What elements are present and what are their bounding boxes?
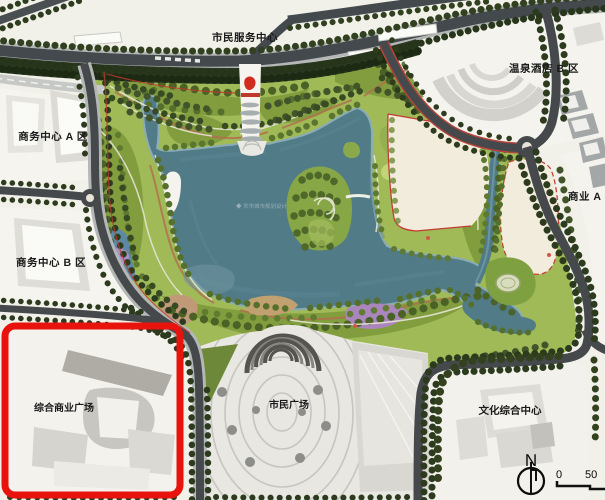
svg-text:50: 50 <box>585 469 597 481</box>
svg-text:市民服务中心: 市民服务中心 <box>212 31 278 44</box>
svg-text:◆ 天华城市规划设计: ◆ 天华城市规划设计 <box>236 203 288 210</box>
svg-text:商务中心 B 区: 商务中心 B 区 <box>16 256 86 269</box>
svg-text:文化综合中心: 文化综合中心 <box>478 404 542 417</box>
svg-text:综合商业广场: 综合商业广场 <box>34 402 94 414</box>
svg-text:温泉酒店 B 区: 温泉酒店 B 区 <box>509 62 579 75</box>
svg-text:商务中心 A 区: 商务中心 A 区 <box>18 130 88 143</box>
svg-text:市民广场: 市民广场 <box>269 399 309 411</box>
svg-text:商业 A 区: 商业 A 区 <box>568 190 605 203</box>
svg-text:0: 0 <box>556 469 562 481</box>
